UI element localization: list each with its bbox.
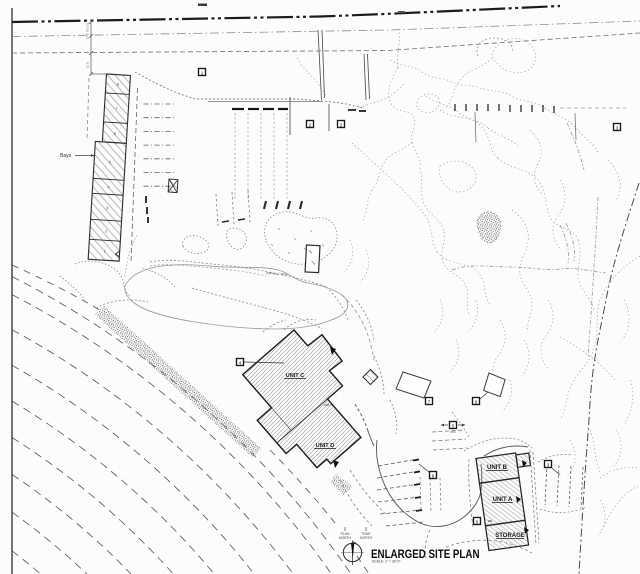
- svg-text:NORTH: NORTH: [339, 536, 352, 540]
- svg-text:6: 6: [114, 132, 116, 136]
- svg-text:12.0': 12.0': [86, 61, 90, 68]
- svg-text:STORAGE: STORAGE: [495, 533, 525, 539]
- svg-text:UNIT A: UNIT A: [493, 497, 513, 503]
- svg-text:SCALE: 1" = 30'-0": SCALE: 1" = 30'-0": [372, 560, 401, 564]
- svg-text:2: 2: [105, 229, 107, 233]
- svg-text:1: 1: [104, 249, 106, 253]
- svg-text:UNIT D: UNIT D: [316, 443, 335, 449]
- svg-text:RIM: RIM: [450, 430, 456, 434]
- svg-text:Bays: Bays: [60, 153, 72, 159]
- svg-text:5: 5: [109, 160, 111, 164]
- svg-text:NORTH: NORTH: [360, 536, 373, 540]
- svg-text:37.5' TO C/L: 37.5' TO C/L: [86, 22, 90, 39]
- svg-text:UNIT B: UNIT B: [487, 465, 508, 471]
- svg-text:8: 8: [117, 83, 119, 87]
- svg-text:UNIT C: UNIT C: [286, 373, 305, 379]
- svg-text:4: 4: [107, 185, 109, 189]
- svg-text:Unit C: Unit C: [324, 403, 334, 407]
- svg-text:3: 3: [106, 206, 108, 210]
- svg-text:7: 7: [115, 107, 117, 111]
